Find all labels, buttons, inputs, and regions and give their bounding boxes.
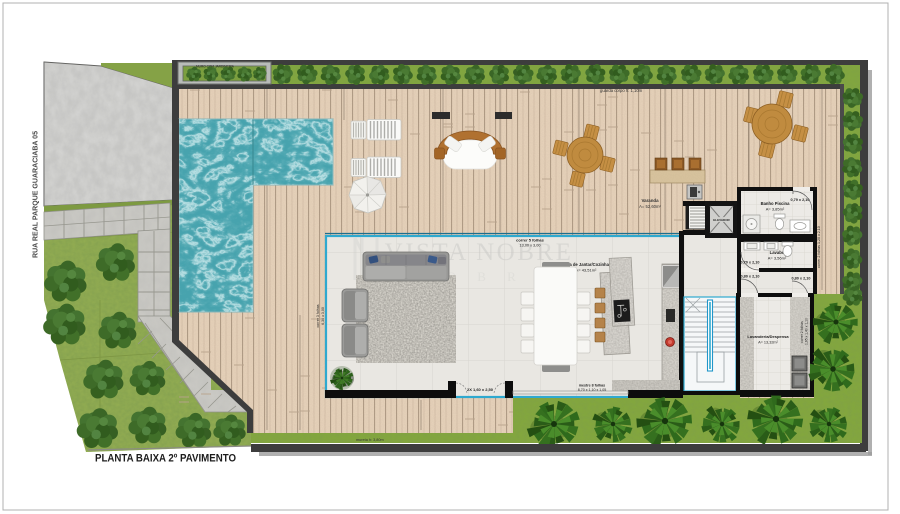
svg-text:correr 2 folhas 1,20 x 2,10: correr 2 folhas 1,20 x 2,10: [817, 226, 821, 268]
svg-text:2X 1,60 x 2,50: 2X 1,60 x 2,50: [467, 387, 494, 392]
svg-text:Lavabo: Lavabo: [770, 250, 785, 255]
svg-text:A= 43,51m²: A= 43,51m²: [576, 268, 597, 273]
svg-text:guarda corpo h: 1,10m: guarda corpo h: 1,10m: [600, 88, 643, 93]
svg-text:0,80 x 2,10: 0,80 x 2,10: [740, 275, 759, 279]
svg-text:RUA REAL PARQUE GUARACIABA 05: RUA REAL PARQUE GUARACIABA 05: [33, 131, 40, 258]
svg-text:A= 13,32m²: A= 13,32m²: [758, 341, 778, 345]
svg-text:mureta h: 3,80m: mureta h: 3,80m: [356, 438, 384, 442]
svg-text:PLANTA BAIXA 2º PAVIMENTO: PLANTA BAIXA 2º PAVIMENTO: [95, 453, 236, 465]
svg-text:ELEVADOR: ELEVADOR: [713, 218, 730, 222]
svg-text:A= 3,85m²: A= 3,85m²: [766, 207, 785, 212]
svg-text:A= 52,60m²: A= 52,60m²: [639, 204, 661, 209]
svg-text:0,79 x 2,10: 0,79 x 2,10: [790, 198, 809, 202]
svg-text:A= 3,56m²: A= 3,56m²: [768, 256, 787, 261]
svg-text:mestre 8 folhas: mestre 8 folhas: [579, 384, 605, 388]
svg-text:0,80 x 2,10: 0,80 x 2,10: [791, 277, 810, 281]
svg-text:correr 3 folhas: correr 3 folhas: [316, 304, 320, 327]
svg-text:Banho Piscina: Banho Piscina: [761, 201, 791, 206]
svg-text:6,30 x 3,00: 6,30 x 3,00: [321, 307, 325, 325]
svg-text:Sala de Jantar/Cozinha: Sala de Jantar/Cozinha: [563, 262, 610, 267]
svg-text:8,70 x 1,10 x 1,05: 8,70 x 1,10 x 1,05: [578, 388, 607, 392]
svg-text:Varanda: Varanda: [641, 198, 659, 203]
svg-text:0,70 x 2,10: 0,70 x 2,10: [740, 261, 759, 265]
svg-text:13,00 x 3,00: 13,00 x 3,00: [520, 244, 541, 248]
svg-text:correr 2 folhas: correr 2 folhas: [800, 321, 804, 343]
svg-text:Lavanderia/Despensa: Lavanderia/Despensa: [747, 334, 789, 339]
svg-text:correr 5 folhas: correr 5 folhas: [516, 238, 545, 243]
svg-text:1,65 x 1,40 x 1,10: 1,65 x 1,40 x 1,10: [805, 318, 809, 345]
